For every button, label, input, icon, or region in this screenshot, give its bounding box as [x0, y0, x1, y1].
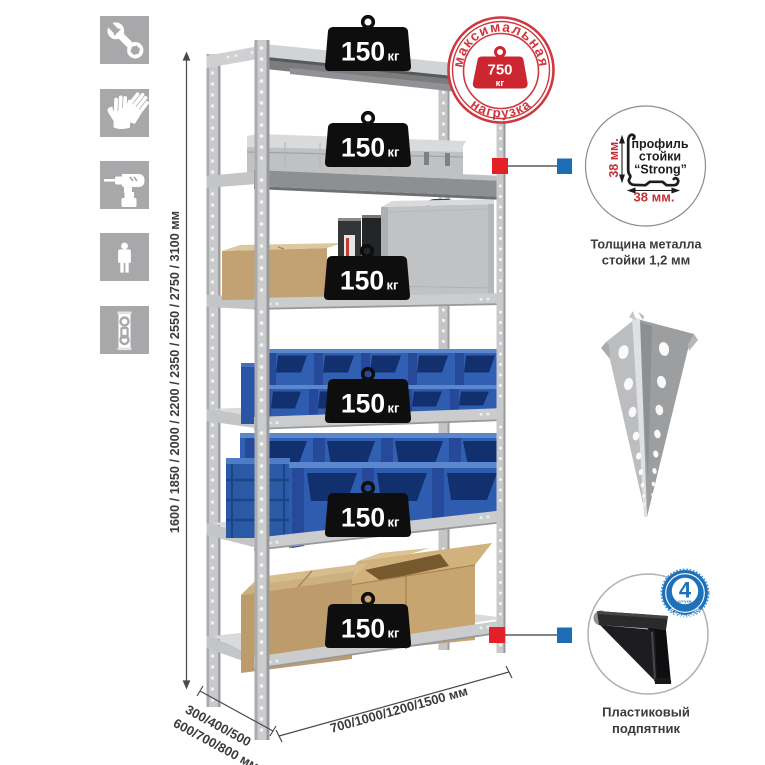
svg-text:подпятник: подпятник — [612, 721, 681, 736]
svg-text:Пластиковый: Пластиковый — [602, 705, 690, 720]
svg-text:стойки: стойки — [639, 150, 681, 164]
svg-text:38 мм.: 38 мм. — [607, 138, 621, 177]
svg-text:38 мм.: 38 мм. — [634, 190, 675, 205]
svg-text:750: 750 — [487, 62, 512, 79]
svg-text:штуки: штуки — [678, 599, 692, 604]
svg-text:кг: кг — [496, 78, 505, 89]
svg-text:Толщина металла: Толщина металла — [590, 238, 702, 252]
svg-text:стойки 1,2 мм: стойки 1,2 мм — [602, 253, 690, 268]
svg-text:“Strong”: “Strong” — [634, 163, 687, 177]
svg-text:1600 / 1850 / 2000 / 2200 / 23: 1600 / 1850 / 2000 / 2200 / 2350 / 2550 … — [168, 211, 182, 533]
